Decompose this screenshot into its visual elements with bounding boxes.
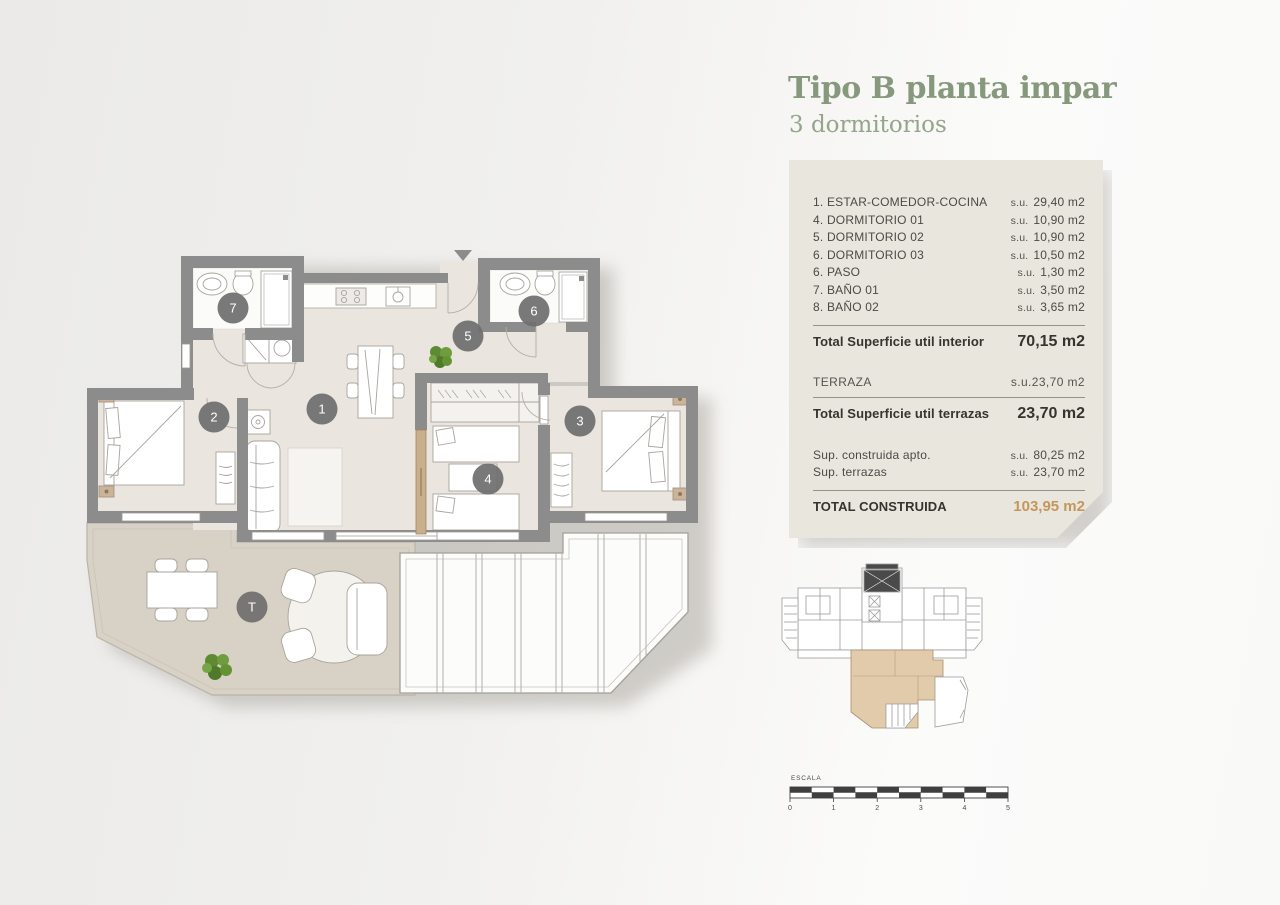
scale-tick-label: 1 <box>832 805 836 812</box>
area-row-value: 10,90 m2 <box>1033 213 1085 227</box>
scale-segment <box>899 793 921 799</box>
total-construida-row: TOTAL CONSTRUIDA 103,95 m2 <box>813 498 1085 515</box>
area-row: Sup. terrazass.u.23,70 m2 <box>813 464 1085 482</box>
chair-icon <box>155 559 177 572</box>
wardrobe-icon <box>431 383 539 422</box>
scale-segment <box>855 793 877 799</box>
scale-segment <box>964 787 986 793</box>
su-prefix: s.u. <box>1018 267 1036 279</box>
terraza-value: 23,70 m2 <box>1032 375 1085 389</box>
scale-segment <box>964 793 986 799</box>
brochure-page: 7651234T Tipo B planta impar 3 dormitori… <box>0 0 1280 905</box>
area-row-label: Sup. construida apto. <box>813 447 931 464</box>
terrace-table-icon <box>147 572 217 608</box>
page-title: Tipo B planta impar <box>788 72 1118 106</box>
total-construida-value: 103,95 m2 <box>1013 498 1085 515</box>
total-interior-label: Total Superficie util interior <box>813 334 984 349</box>
area-row-label: 7. BAÑO 01 <box>813 282 879 299</box>
scale-segment <box>943 793 965 799</box>
total-terrazas-value: 23,70 m2 <box>1017 405 1085 423</box>
su-prefix: s.u. <box>1011 450 1029 462</box>
window-icon <box>122 513 200 521</box>
room-badge-number: 7 <box>229 301 236 316</box>
construida-list: Sup. construida apto.s.u.80,25 m2Sup. te… <box>813 447 1085 482</box>
sink-icon <box>500 273 530 295</box>
area-row-label: 6. PASO <box>813 264 860 281</box>
window-icon <box>437 532 519 540</box>
scale-segment <box>834 793 856 799</box>
scale-bar: ESCALA 012345 <box>782 768 1022 818</box>
scale-segment <box>812 793 834 799</box>
area-row: 4. DORMITORIO 01s.u.10,90 m2 <box>813 212 1085 230</box>
area-row-value: 23,70 m2 <box>1033 465 1085 479</box>
area-row-label: 5. DORMITORIO 02 <box>813 229 924 246</box>
area-row-label: Sup. terrazas <box>813 464 887 481</box>
divider <box>813 490 1085 491</box>
su-prefix: s.u. <box>1011 197 1029 209</box>
room-badge-number: 2 <box>210 410 217 425</box>
room-badge-number: 1 <box>318 402 325 417</box>
scale-segment <box>812 787 834 793</box>
area-row-value: 29,40 m2 <box>1033 195 1085 209</box>
scale-segment <box>877 787 899 793</box>
area-summary-panel: 1. ESTAR-COMEDOR-COCINAs.u.29,40 m24. DO… <box>789 160 1103 538</box>
area-row-label: 4. DORMITORIO 01 <box>813 212 924 229</box>
area-row-value: 10,50 m2 <box>1033 248 1085 262</box>
chair-icon <box>347 383 358 398</box>
chair-icon <box>393 383 404 398</box>
area-row-value: 3,65 m2 <box>1040 300 1085 314</box>
scale-segment <box>790 787 812 793</box>
divider <box>813 397 1085 398</box>
room-badge-number: 5 <box>464 329 471 344</box>
scale-segment <box>986 793 1008 799</box>
scale-segment <box>899 787 921 793</box>
floorplan-svg: 7651234T <box>60 230 740 730</box>
chair-icon <box>347 354 358 369</box>
scale-tick-label: 4 <box>962 805 966 812</box>
su-prefix: s.u. <box>1011 232 1029 244</box>
scale-segment <box>855 787 877 793</box>
sofa-icon <box>246 441 280 533</box>
area-row-label: 8. BAÑO 02 <box>813 299 879 316</box>
stove-icon <box>336 288 366 305</box>
window-icon <box>252 532 324 540</box>
su-prefix: s.u. <box>1011 250 1029 262</box>
area-row-label: 1. ESTAR-COMEDOR-COCINA <box>813 194 987 211</box>
su-prefix: s.u. <box>1018 285 1036 297</box>
area-row: 6. PASOs.u.1,30 m2 <box>813 264 1085 282</box>
su-prefix: s.u. <box>1011 215 1029 227</box>
chair-icon <box>186 559 208 572</box>
divider <box>813 325 1085 326</box>
chair-icon <box>393 354 404 369</box>
scale-segment <box>986 787 1008 793</box>
lounge-sofa-icon <box>347 583 387 655</box>
building-key-plan <box>778 560 1010 744</box>
total-interior-row: Total Superficie util interior 70,15 m2 <box>813 333 1085 351</box>
page-subtitle: 3 dormitorios <box>789 112 1119 138</box>
total-construida-label: TOTAL CONSTRUIDA <box>813 499 947 514</box>
area-row: 7. BAÑO 01s.u.3,50 m2 <box>813 282 1085 300</box>
chair-icon <box>155 608 177 621</box>
window-icon <box>585 513 667 521</box>
area-row-value: 3,50 m2 <box>1040 283 1085 297</box>
appliance-icon <box>246 410 270 434</box>
sink-icon <box>197 273 227 295</box>
area-row: 1. ESTAR-COMEDOR-COCINAs.u.29,40 m2 <box>813 194 1085 212</box>
scale-bar-label: ESCALA <box>791 775 821 782</box>
terraza-row: TERRAZA s.u.23,70 m2 <box>813 375 1085 389</box>
room-badge-number: T <box>248 600 256 615</box>
su-prefix: s.u. <box>1011 375 1032 389</box>
scale-segment <box>790 793 812 799</box>
total-terrazas-row: Total Superficie util terrazas 23,70 m2 <box>813 405 1085 423</box>
area-row: 8. BAÑO 02s.u.3,65 m2 <box>813 299 1085 317</box>
rug-icon <box>288 448 342 526</box>
scale-tick-label: 3 <box>919 805 923 812</box>
scale-segment <box>921 787 943 793</box>
room-area-list: 1. ESTAR-COMEDOR-COCINAs.u.29,40 m24. DO… <box>813 194 1085 317</box>
scale-tick-label: 0 <box>788 805 792 812</box>
scale-segment <box>921 793 943 799</box>
area-row: Sup. construida apto.s.u.80,25 m2 <box>813 447 1085 465</box>
scale-tick-label: 2 <box>875 805 879 812</box>
entrance-arrow-icon <box>454 250 472 261</box>
area-row-value: 10,90 m2 <box>1033 230 1085 244</box>
su-prefix: s.u. <box>1018 302 1036 314</box>
window-icon <box>182 344 190 368</box>
wardrobe-icon <box>551 453 572 507</box>
area-row-label: 6. DORMITORIO 03 <box>813 247 924 264</box>
area-row-value: 80,25 m2 <box>1033 448 1085 462</box>
terraza-label: TERRAZA <box>813 375 872 389</box>
scale-bar-ticks: 012345 <box>788 798 1010 812</box>
room-badge-number: 6 <box>530 304 537 319</box>
scale-segment <box>877 793 899 799</box>
scale-segment <box>943 787 965 793</box>
scale-segment <box>834 787 856 793</box>
scale-tick-label: 5 <box>1006 805 1010 812</box>
su-prefix: s.u. <box>1011 467 1029 479</box>
total-interior-value: 70,15 m2 <box>1017 333 1085 351</box>
chair-icon <box>186 608 208 621</box>
room-badge-number: 4 <box>484 472 491 487</box>
area-row: 5. DORMITORIO 02s.u.10,90 m2 <box>813 229 1085 247</box>
area-row-value: 1,30 m2 <box>1040 265 1085 279</box>
total-terrazas-label: Total Superficie util terrazas <box>813 406 989 421</box>
area-row: 6. DORMITORIO 03s.u.10,50 m2 <box>813 247 1085 265</box>
dresser-icon <box>216 452 235 504</box>
room-badge-number: 3 <box>576 414 583 429</box>
